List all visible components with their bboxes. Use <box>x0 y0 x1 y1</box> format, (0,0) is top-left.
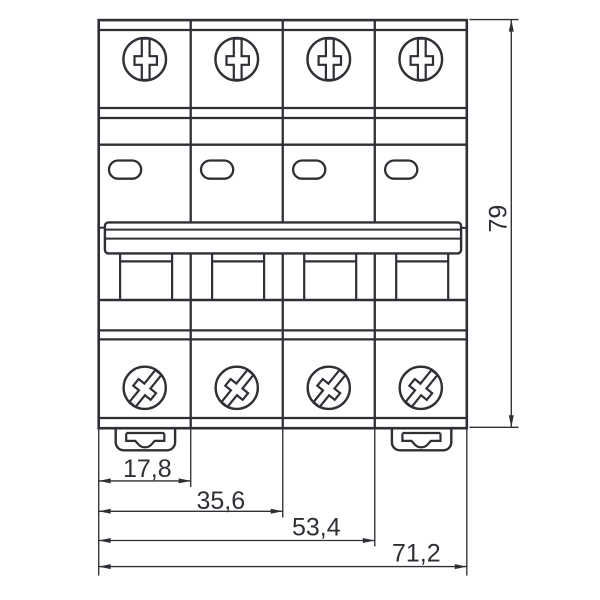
svg-text:17,8: 17,8 <box>123 455 172 483</box>
svg-text:71,2: 71,2 <box>392 539 441 567</box>
svg-text:35,6: 35,6 <box>196 487 245 515</box>
svg-text:53,4: 53,4 <box>292 513 341 541</box>
svg-text:79: 79 <box>484 205 512 233</box>
